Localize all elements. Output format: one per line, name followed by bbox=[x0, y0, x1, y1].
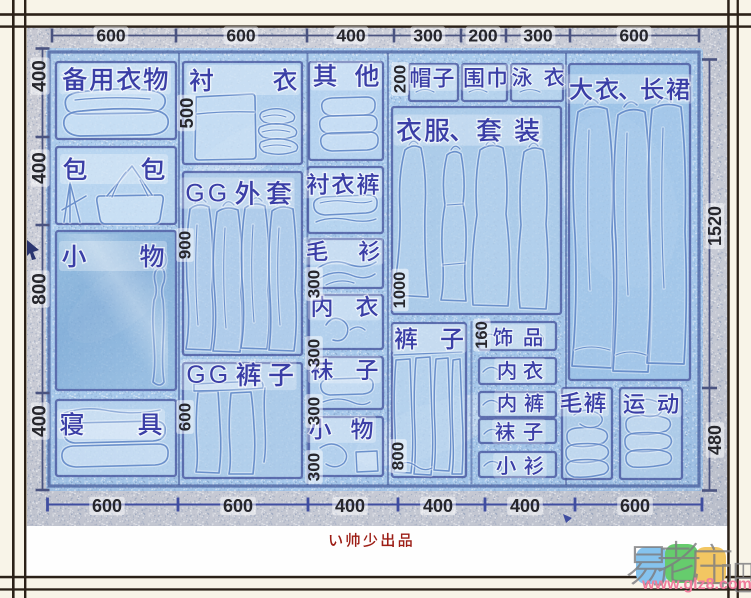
svg-text:400: 400 bbox=[336, 25, 365, 45]
svg-text:G: G bbox=[208, 180, 227, 207]
svg-text:480: 480 bbox=[705, 425, 725, 455]
svg-text:800: 800 bbox=[389, 442, 408, 470]
svg-text:600: 600 bbox=[619, 25, 648, 45]
svg-text:160: 160 bbox=[473, 321, 491, 349]
svg-text:300: 300 bbox=[305, 397, 324, 425]
svg-text:900: 900 bbox=[176, 231, 195, 259]
svg-text:600: 600 bbox=[226, 25, 255, 45]
svg-text:300: 300 bbox=[305, 339, 324, 367]
svg-text:600: 600 bbox=[92, 496, 122, 516]
svg-text:400: 400 bbox=[30, 405, 51, 437]
svg-text:600: 600 bbox=[176, 403, 195, 431]
svg-text:www.glz8.com: www.glz8.com bbox=[641, 576, 751, 593]
svg-text:500: 500 bbox=[176, 98, 197, 129]
svg-text:300: 300 bbox=[305, 453, 324, 481]
svg-text:1000: 1000 bbox=[391, 272, 409, 309]
svg-text:1520: 1520 bbox=[705, 206, 725, 246]
svg-text:400: 400 bbox=[423, 496, 453, 516]
svg-text:200: 200 bbox=[468, 25, 497, 45]
svg-text:400: 400 bbox=[510, 496, 540, 516]
svg-text:300: 300 bbox=[305, 270, 324, 298]
svg-text:G: G bbox=[209, 362, 228, 389]
svg-text:200: 200 bbox=[391, 65, 410, 93]
svg-text:600: 600 bbox=[620, 496, 650, 516]
svg-text:300: 300 bbox=[413, 25, 442, 45]
svg-text:600: 600 bbox=[223, 496, 253, 516]
svg-text:300: 300 bbox=[523, 25, 552, 45]
svg-text:G: G bbox=[186, 362, 205, 389]
svg-text:800: 800 bbox=[30, 273, 51, 305]
svg-text:G: G bbox=[185, 180, 204, 207]
svg-text:400: 400 bbox=[30, 152, 51, 184]
svg-text:400: 400 bbox=[335, 496, 365, 516]
svg-text:400: 400 bbox=[30, 60, 51, 92]
svg-text:600: 600 bbox=[96, 25, 125, 45]
